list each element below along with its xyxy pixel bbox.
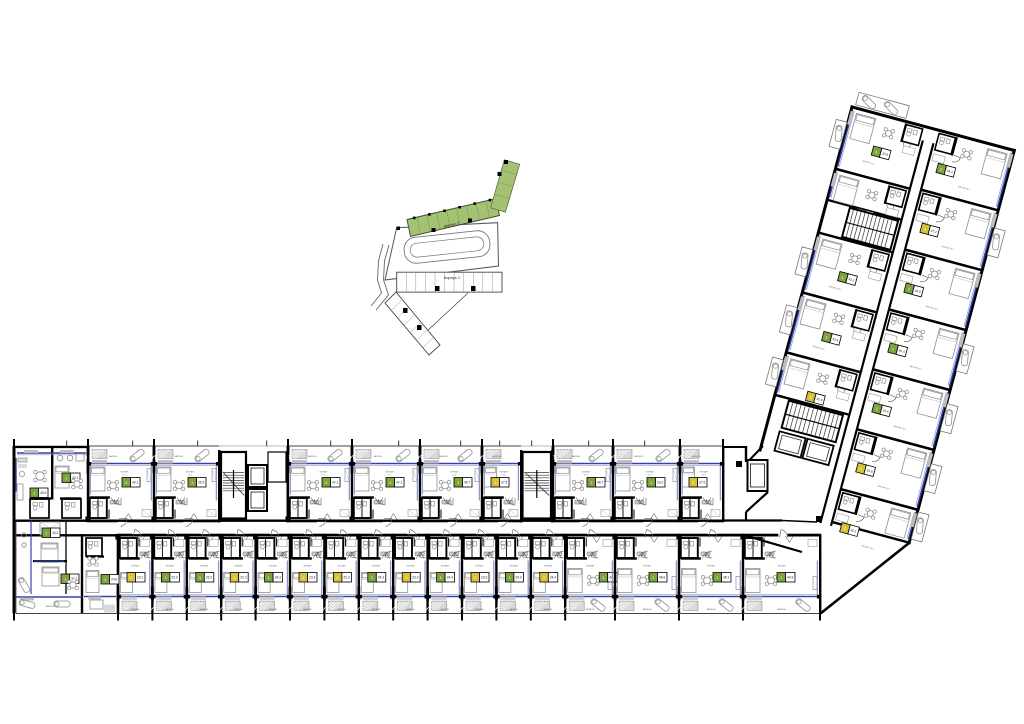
svg-text:БАЛКОН: БАЛКОН	[586, 608, 595, 611]
svg-text:ЖИЛАЯ: ЖИЛАЯ	[510, 565, 518, 568]
svg-text:БАЛКОН: БАЛКОН	[475, 608, 484, 611]
svg-text:27.5: 27.5	[699, 481, 705, 485]
svg-text:БАЛКОН: БАЛКОН	[109, 455, 118, 458]
svg-text:ЖИЛАЯ: ЖИЛАЯ	[586, 565, 594, 568]
svg-text:23.3: 23.3	[309, 576, 315, 580]
svg-text:БАЛКОН: БАЛКОН	[308, 455, 317, 458]
svg-text:БАЛКОН: БАЛКОН	[509, 608, 518, 611]
svg-text:26.3: 26.3	[198, 481, 204, 485]
svg-text:БАЛКОН: БАЛКОН	[200, 608, 209, 611]
svg-text:БАЛКОН: БАЛКОН	[643, 608, 652, 611]
svg-text:БАЛКОН: БАЛКОН	[337, 608, 346, 611]
svg-text:БАЛКОН: БАЛКОН	[544, 608, 553, 611]
svg-text:БАЛКОН: БАЛКОН	[234, 608, 243, 611]
svg-text:23.1: 23.1	[137, 576, 143, 580]
svg-text:ЖИЛАЯ: ЖИЛАЯ	[646, 471, 654, 474]
svg-text:22.3: 22.3	[343, 576, 349, 580]
svg-text:ЖИЛАЯ: ЖИЛАЯ	[319, 471, 327, 474]
svg-text:ЖИЛАЯ: ЖИЛАЯ	[166, 565, 174, 568]
svg-text:БАЛКОН: БАЛКОН	[269, 608, 278, 611]
svg-text:БАЛКОН: БАЛКОН	[131, 608, 140, 611]
svg-text:40.1: 40.1	[132, 481, 138, 485]
svg-text:БАЛКОН: БАЛКОН	[406, 608, 415, 611]
svg-text:46.6: 46.6	[659, 576, 665, 580]
svg-text:24.4: 24.4	[550, 576, 556, 580]
svg-text:ЖИЛАЯ: ЖИЛАЯ	[544, 565, 552, 568]
svg-text:ЖИЛАЯ: ЖИЛАЯ	[700, 471, 708, 474]
svg-text:ЖИЛАЯ: ЖИЛАЯ	[643, 565, 651, 568]
svg-text:БАЛКОН: БАЛКОН	[777, 608, 786, 611]
svg-text:БАЛКОН: БАЛКОН	[692, 455, 701, 458]
svg-text:БАЛКОН: БАЛКОН	[441, 608, 450, 611]
svg-text:БАЛКОН: БАЛКОН	[493, 455, 502, 458]
svg-text:24.4: 24.4	[515, 576, 521, 580]
svg-text:47.1: 47.1	[396, 481, 402, 485]
svg-text:ЖИЛАЯ: ЖИЛАЯ	[338, 565, 346, 568]
svg-text:БАЛКОН: БАЛКОН	[707, 608, 716, 611]
svg-text:46.7: 46.7	[464, 481, 470, 485]
svg-text:ЖИЛАЯ: ЖИЛАЯ	[234, 565, 242, 568]
svg-text:47.1: 47.1	[332, 481, 338, 485]
svg-text:БАЛКОН: БАЛКОН	[303, 608, 312, 611]
svg-text:ЖИЛАЯ: ЖИЛАЯ	[450, 471, 458, 474]
svg-text:23.3: 23.3	[481, 576, 487, 580]
svg-text:ЖИЛАЯ: ЖИЛАЯ	[303, 565, 311, 568]
svg-text:24.4: 24.4	[447, 576, 453, 580]
svg-text:ЖИЛАЯ: ЖИЛАЯ	[269, 565, 277, 568]
svg-text:БАЛКОН: БАЛКОН	[572, 455, 581, 458]
svg-text:ЖИЛАЯ: ЖИЛАЯ	[120, 471, 128, 474]
svg-text:ЖИЛАЯ: ЖИЛАЯ	[372, 565, 380, 568]
svg-text:БАЛКОН: БАЛКОН	[634, 455, 643, 458]
svg-text:27.5: 27.5	[501, 481, 507, 485]
svg-text:БАЛКОН: БАЛКОН	[372, 608, 381, 611]
svg-text:БАЛКОН: БАЛКОН	[174, 455, 183, 458]
svg-text:46.7: 46.7	[597, 481, 603, 485]
svg-text:ЖИЛАЯ: ЖИЛАЯ	[200, 565, 208, 568]
svg-text:24.3: 24.3	[378, 576, 384, 580]
svg-text:ЖИЛАЯ: ЖИЛАЯ	[131, 565, 139, 568]
svg-text:ЖИЛАЯ: ЖИЛАЯ	[406, 565, 414, 568]
svg-text:24.6: 24.6	[111, 578, 117, 582]
svg-text:ЖИЛАЯ: ЖИЛАЯ	[441, 565, 449, 568]
svg-text:ЖИЛАЯ: ЖИЛАЯ	[499, 471, 507, 474]
svg-text:44.3: 44.3	[787, 576, 793, 580]
svg-text:22.3: 22.3	[240, 576, 246, 580]
svg-text:БАЛКОН: БАЛКОН	[374, 455, 383, 458]
svg-text:ЖИЛАЯ: ЖИЛАЯ	[777, 565, 785, 568]
svg-text:БАЛКОН: БАЛКОН	[46, 605, 55, 608]
svg-text:ЖИЛАЯ: ЖИЛАЯ	[186, 471, 194, 474]
svg-text:БАЛКОН: БАЛКОН	[439, 455, 448, 458]
svg-text:23.3: 23.3	[412, 576, 418, 580]
svg-text:ЖИЛАЯ: ЖИЛАЯ	[475, 565, 483, 568]
svg-text:Корпус 1: Корпус 1	[444, 275, 461, 280]
svg-text:48.1: 48.1	[723, 576, 729, 580]
svg-text:ЖИЛАЯ: ЖИЛАЯ	[385, 471, 393, 474]
svg-text:БАЛКОН: БАЛКОН	[165, 608, 174, 611]
svg-text:24.3: 24.3	[275, 576, 281, 580]
svg-text:23.2: 23.2	[206, 576, 212, 580]
svg-text:23.2: 23.2	[171, 576, 177, 580]
svg-text:34.3: 34.3	[52, 531, 58, 535]
svg-text:45.5: 45.5	[40, 491, 46, 495]
svg-text:ЖИЛАЯ: ЖИЛАЯ	[582, 471, 590, 474]
svg-text:33.2: 33.2	[657, 481, 663, 485]
svg-text:ЖИЛАЯ: ЖИЛАЯ	[707, 565, 715, 568]
